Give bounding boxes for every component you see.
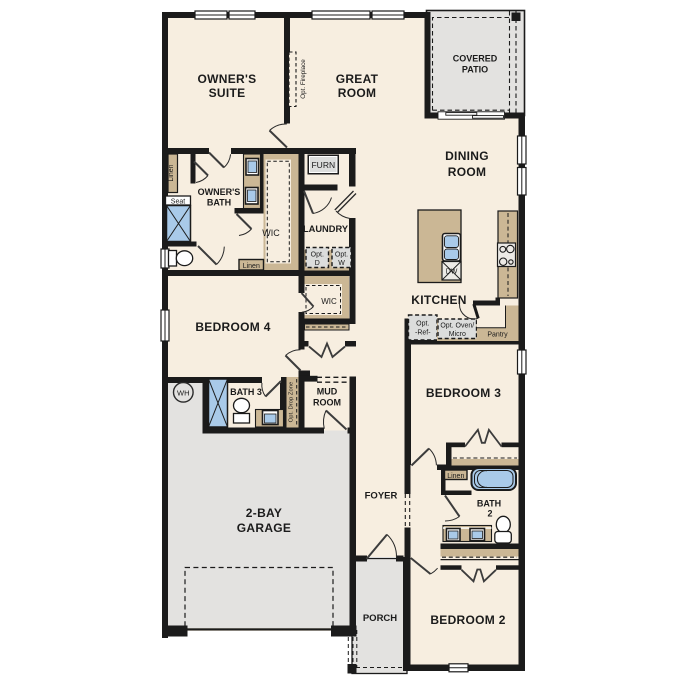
svg-text:SUITE: SUITE <box>209 86 246 100</box>
svg-text:PATIO: PATIO <box>462 65 488 75</box>
svg-text:FURN: FURN <box>311 160 335 170</box>
svg-text:PORCH: PORCH <box>363 613 397 624</box>
svg-text:WH: WH <box>177 388 190 397</box>
svg-text:Opt. Drop Zone: Opt. Drop Zone <box>288 381 294 422</box>
svg-text:-Ref-: -Ref- <box>415 330 431 337</box>
svg-text:GARAGE: GARAGE <box>237 521 291 535</box>
svg-text:BATH: BATH <box>207 198 231 208</box>
svg-text:WIC: WIC <box>321 297 337 306</box>
svg-text:Pantry: Pantry <box>487 332 508 339</box>
svg-text:GREAT: GREAT <box>336 72 379 86</box>
svg-text:BATH: BATH <box>477 499 501 509</box>
svg-text:2-BAY: 2-BAY <box>246 506 282 520</box>
svg-text:D: D <box>315 260 320 267</box>
svg-text:Linen: Linen <box>243 263 260 270</box>
svg-text:LAUNDRY: LAUNDRY <box>303 224 349 234</box>
svg-text:Opt.: Opt. <box>335 252 348 259</box>
svg-text:Micro: Micro <box>449 331 466 338</box>
svg-text:BATH 3: BATH 3 <box>230 387 262 397</box>
svg-text:ROOM: ROOM <box>313 398 341 408</box>
svg-text:MUD: MUD <box>317 387 338 397</box>
svg-text:ROOM: ROOM <box>448 165 487 179</box>
svg-text:BEDROOM 4: BEDROOM 4 <box>195 320 270 334</box>
svg-text:Opt. Oven/: Opt. Oven/ <box>440 323 474 330</box>
svg-text:ROOM: ROOM <box>338 86 377 100</box>
svg-text:Opt.: Opt. <box>311 252 324 259</box>
svg-text:DINING: DINING <box>445 149 489 163</box>
svg-text:WIC: WIC <box>262 228 280 238</box>
svg-text:OWNER'S: OWNER'S <box>198 72 257 86</box>
svg-text:KITCHEN: KITCHEN <box>411 293 466 307</box>
svg-text:Opt. Fireplace: Opt. Fireplace <box>300 59 307 99</box>
svg-text:Linen: Linen <box>447 473 464 480</box>
svg-text:2: 2 <box>487 509 492 519</box>
svg-text:Linen: Linen <box>168 164 175 181</box>
svg-text:BEDROOM 3: BEDROOM 3 <box>426 386 501 400</box>
svg-text:Seat: Seat <box>171 199 185 206</box>
svg-text:BEDROOM 2: BEDROOM 2 <box>430 613 505 627</box>
svg-text:DW: DW <box>446 269 458 276</box>
svg-text:W: W <box>338 260 345 267</box>
svg-text:OWNER'S: OWNER'S <box>198 187 241 197</box>
svg-text:FOYER: FOYER <box>365 491 398 502</box>
svg-text:COVERED: COVERED <box>453 54 498 64</box>
svg-text:Opt.: Opt. <box>416 321 429 328</box>
